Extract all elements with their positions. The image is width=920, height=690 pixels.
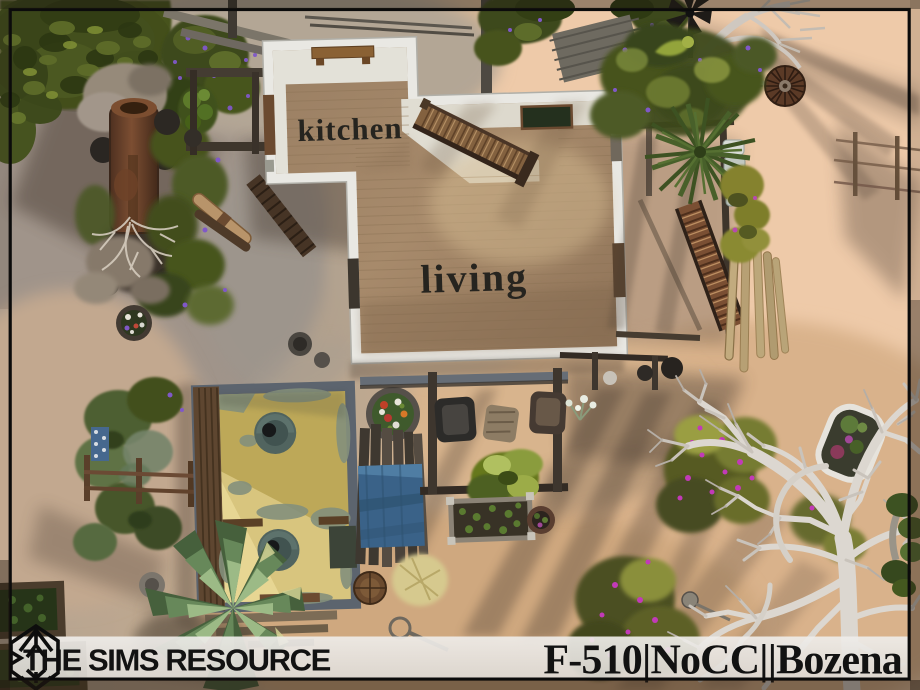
svg-text:living: living [420, 254, 529, 302]
svg-text:THE SIMS RESOURCE: THE SIMS RESOURCE [23, 643, 331, 678]
svg-text:F-510|NoCC||Bozena: F-510|NoCC||Bozena [543, 638, 902, 684]
svg-text:kitchen: kitchen [297, 110, 403, 148]
